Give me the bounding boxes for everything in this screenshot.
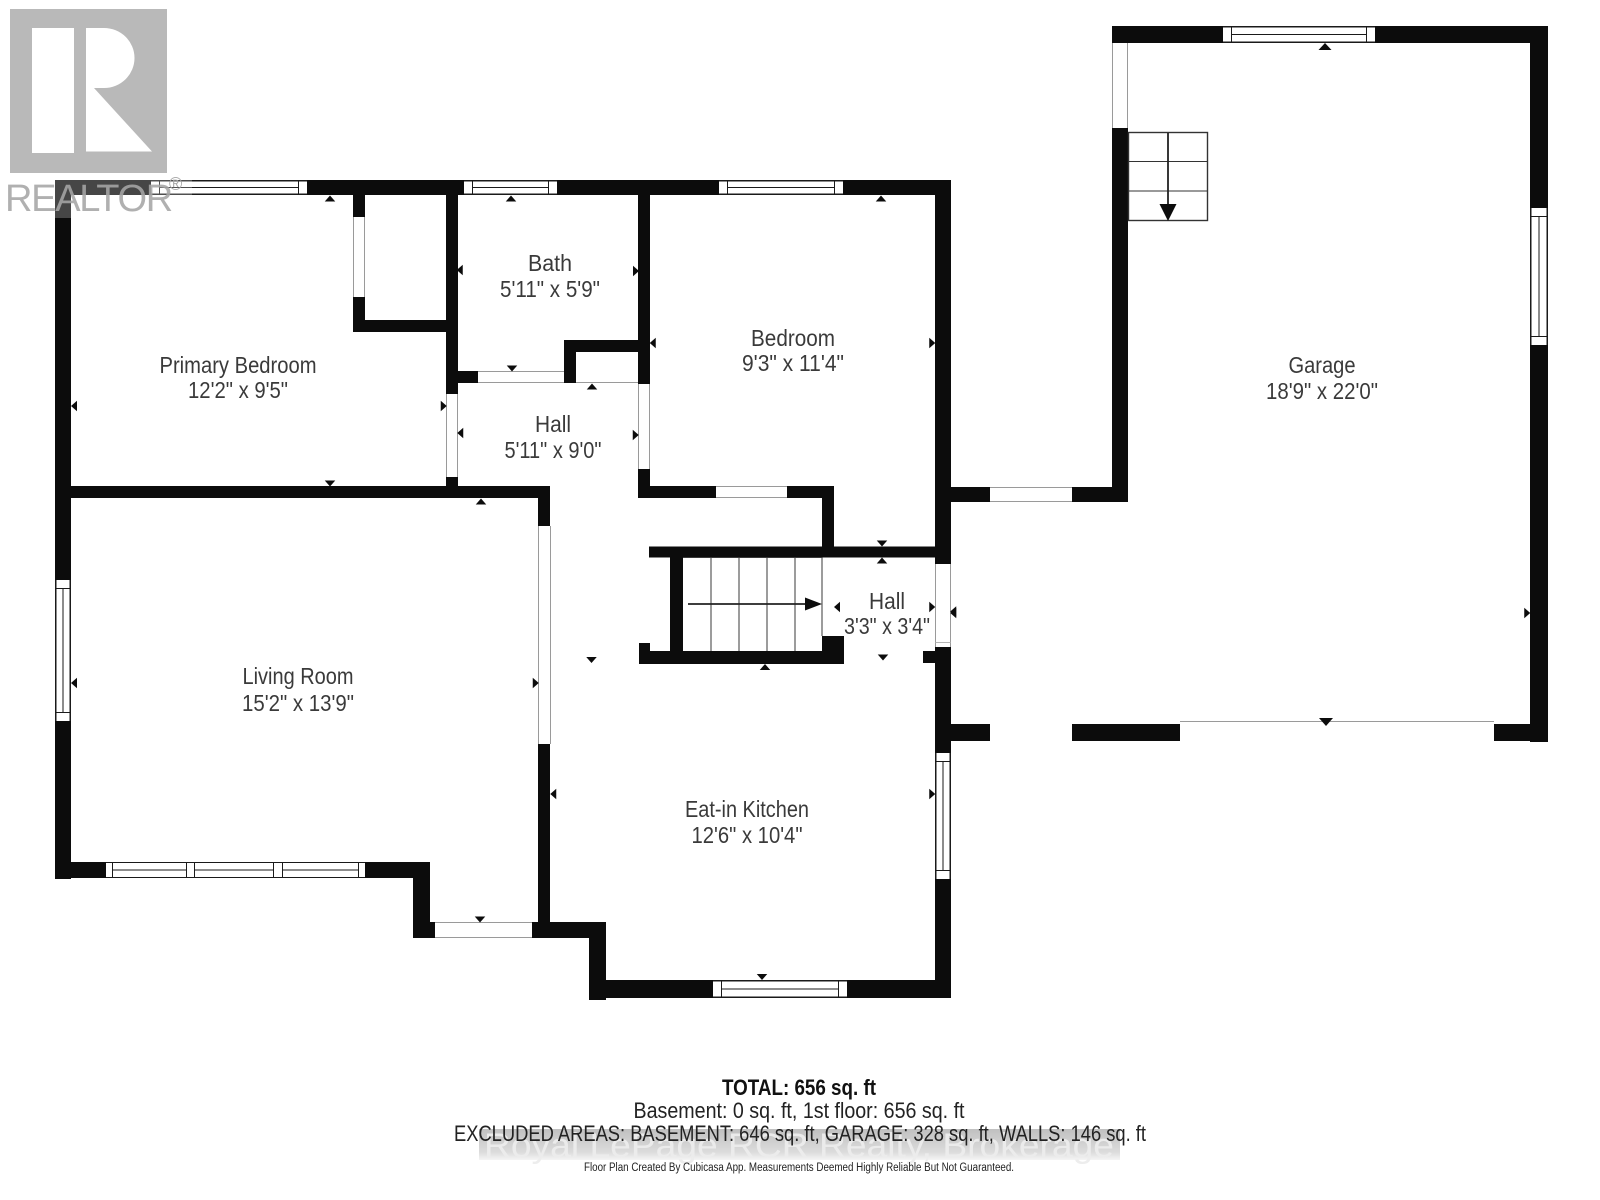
svg-text:Hall: Hall — [535, 411, 571, 437]
svg-text:3'3" x 3'4": 3'3" x 3'4" — [844, 613, 930, 639]
svg-text:5'11" x 9'0": 5'11" x 9'0" — [505, 437, 602, 463]
svg-text:Hall: Hall — [869, 588, 905, 614]
svg-text:Bedroom: Bedroom — [751, 325, 835, 351]
svg-text:TOTAL: 656 sq. ft: TOTAL: 656 sq. ft — [722, 1075, 876, 1100]
svg-text:Floor Plan Created By Cubicasa: Floor Plan Created By Cubicasa App. Meas… — [584, 1162, 1014, 1174]
svg-text:Living Room: Living Room — [243, 663, 354, 689]
svg-text:9'3" x 11'4": 9'3" x 11'4" — [742, 350, 844, 376]
svg-text:15'2" x 13'9": 15'2" x 13'9" — [242, 690, 354, 716]
svg-text:®: ® — [169, 174, 182, 194]
svg-text:Garage: Garage — [1289, 352, 1356, 378]
svg-text:Basement: 0 sq. ft, 1st floor:: Basement: 0 sq. ft, 1st floor: 656 sq. f… — [634, 1098, 966, 1123]
svg-text:18'9" x 22'0": 18'9" x 22'0" — [1266, 378, 1378, 404]
svg-text:12'6" x 10'4": 12'6" x 10'4" — [692, 822, 803, 848]
svg-text:12'2" x 9'5": 12'2" x 9'5" — [188, 377, 288, 403]
svg-text:Bath: Bath — [528, 250, 572, 276]
svg-text:EXCLUDED AREAS: BASEMENT: 646: EXCLUDED AREAS: BASEMENT: 646 sq. ft, GA… — [454, 1121, 1147, 1146]
svg-text:5'11" x 5'9": 5'11" x 5'9" — [500, 276, 600, 302]
svg-text:Eat-in Kitchen: Eat-in Kitchen — [685, 796, 809, 822]
svg-text:Primary Bedroom: Primary Bedroom — [160, 352, 317, 378]
svg-text:REALTOR: REALTOR — [5, 178, 172, 220]
